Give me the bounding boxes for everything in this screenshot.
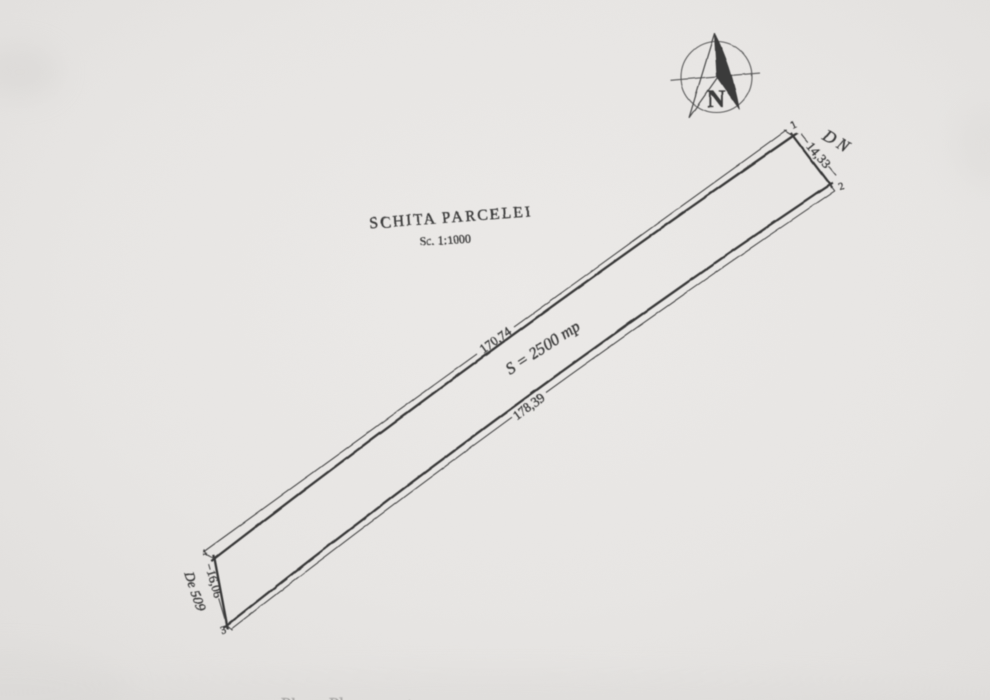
svg-text:nt: nt (398, 695, 412, 700)
svg-text:Pl: Pl (329, 694, 344, 700)
svg-text:Plan: Plan (281, 694, 313, 700)
svg-text:N: N (707, 86, 725, 113)
svg-text:Sc. 1:1000: Sc. 1:1000 (419, 232, 471, 249)
